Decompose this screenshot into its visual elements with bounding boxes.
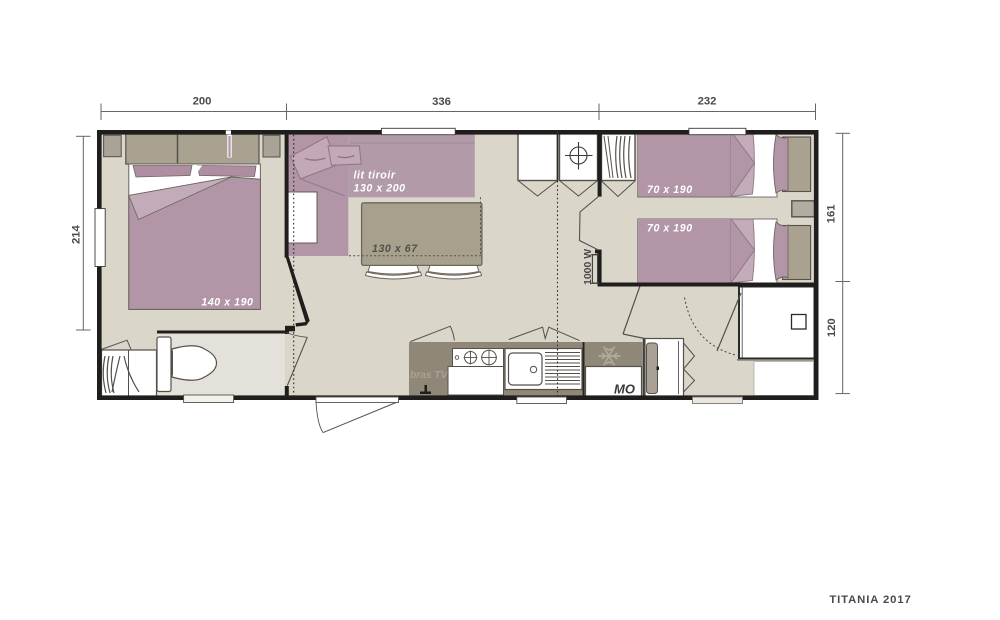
svg-text:MO: MO xyxy=(614,381,635,396)
svg-text:130 x 67: 130 x 67 xyxy=(372,243,418,255)
svg-text:161: 161 xyxy=(826,204,838,223)
svg-text:232: 232 xyxy=(698,96,717,108)
svg-text:70 x 190: 70 x 190 xyxy=(647,223,693,235)
svg-text:200: 200 xyxy=(193,96,212,108)
svg-text:1000 W: 1000 W xyxy=(582,249,594,285)
svg-text:214: 214 xyxy=(70,224,82,244)
svg-text:140 x 190: 140 x 190 xyxy=(201,297,253,309)
svg-text:lit tiroir: lit tiroir xyxy=(354,170,396,182)
svg-text:TITANIA 2017: TITANIA 2017 xyxy=(829,594,911,606)
svg-text:336: 336 xyxy=(432,96,451,108)
svg-text:120: 120 xyxy=(826,318,838,337)
svg-text:70 x 190: 70 x 190 xyxy=(647,184,693,196)
svg-text:130 x 200: 130 x 200 xyxy=(354,183,406,195)
svg-text:bras TV: bras TV xyxy=(410,370,449,381)
